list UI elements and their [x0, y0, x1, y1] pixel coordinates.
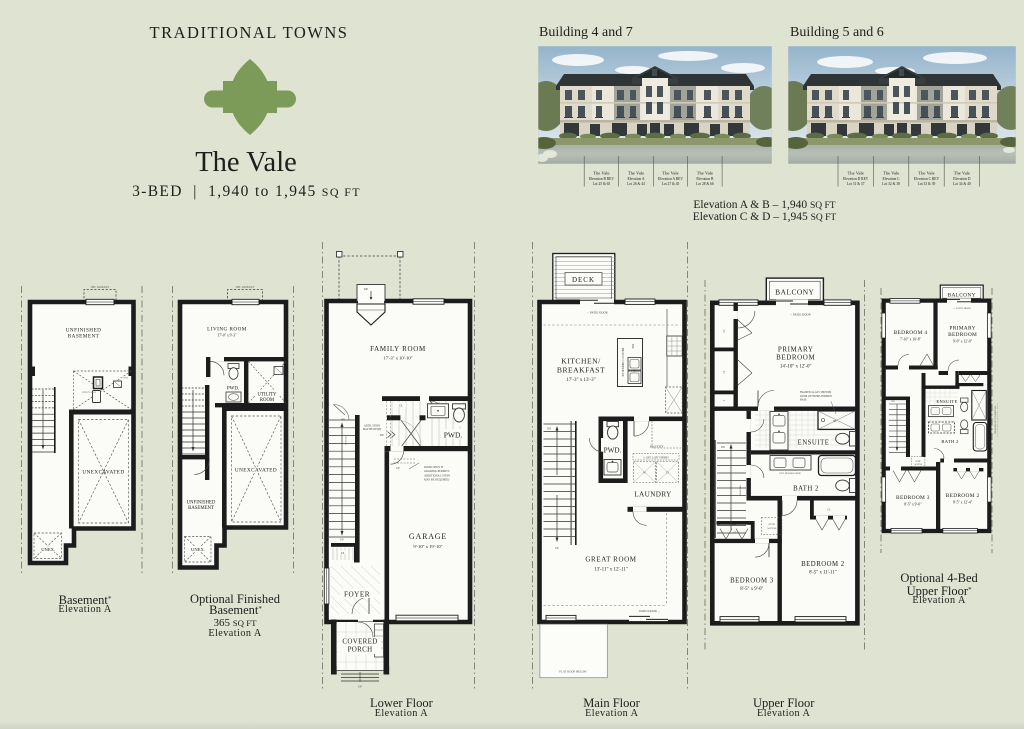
svg-text:Elevation C: Elevation C [883, 177, 901, 181]
svg-text:RAILING: RAILING [739, 485, 742, 495]
svg-text:PRIMARY: PRIMARY [949, 326, 975, 332]
svg-text:GARAGE: GARAGE [409, 532, 447, 541]
svg-text:BEDROOM 2: BEDROOM 2 [801, 561, 845, 568]
svg-text:UNFINISHED: UNFINISHED [66, 327, 102, 333]
svg-text:BALCONY: BALCONY [948, 292, 976, 298]
svg-text:Lot 25 & 65: Lot 25 & 65 [593, 182, 611, 186]
svg-text:OPT. LOOKOUT: OPT. LOOKOUT [236, 286, 255, 289]
svg-text:8'-5" x 9'-0": 8'-5" x 9'-0" [740, 587, 763, 592]
svg-text:Lot 34 & 40: Lot 34 & 40 [953, 182, 971, 186]
svg-text:LAUNDRY: LAUNDRY [634, 491, 672, 499]
svg-text:ENSUITE: ENSUITE [798, 440, 830, 447]
svg-text:PWD.: PWD. [227, 387, 239, 392]
svg-text:UP: UP [358, 686, 362, 689]
svg-text:PWD.: PWD. [604, 447, 622, 455]
svg-text:The Vale: The Vale [918, 171, 934, 176]
svg-text:→ PATIO DOOR: → PATIO DOOR [789, 313, 810, 317]
svg-text:UNEXCAVATED: UNEXCAVATED [235, 468, 277, 474]
svg-text:9'-0" x 12'-0": 9'-0" x 12'-0" [953, 339, 973, 343]
svg-text:ACCESS: ACCESS [767, 527, 777, 530]
svg-text:Elevation B REV: Elevation B REV [589, 177, 615, 181]
svg-text:BEDROOM 4: BEDROOM 4 [894, 330, 928, 336]
svg-text:9'-10" x 19'-10": 9'-10" x 19'-10" [413, 544, 442, 549]
svg-text:ATTIC: ATTIC [915, 460, 921, 463]
svg-text:BATH 2: BATH 2 [941, 439, 959, 444]
svg-text:CL: CL [399, 403, 403, 407]
svg-text:BEDROOM: BEDROOM [776, 354, 815, 362]
svg-text:ACCESS: ACCESS [914, 463, 923, 466]
svg-text:The Vale: The Vale [697, 171, 713, 176]
svg-text:DW: DW [632, 343, 635, 348]
svg-text:EXTENDED COUNTER: EXTENDED COUNTER [622, 347, 625, 376]
svg-text:DN: DN [891, 401, 895, 403]
svg-text:UP: UP [555, 547, 559, 550]
svg-text:The Vale: The Vale [593, 171, 609, 176]
svg-text:7'-10" x 10'-8": 7'-10" x 10'-8" [900, 337, 922, 341]
svg-text:OPT. LOOKOUT: OPT. LOOKOUT [91, 286, 110, 289]
svg-text:8'-5" x 11'-11": 8'-5" x 11'-11" [809, 571, 837, 576]
svg-text:ROOM: ROOM [260, 398, 275, 403]
svg-text:Lot 28 & 66: Lot 28 & 66 [696, 182, 714, 186]
svg-text:BEDROOM: BEDROOM [948, 332, 977, 338]
svg-text:COVERED: COVERED [342, 638, 377, 646]
svg-text:BASEMENT: BASEMENT [68, 334, 100, 340]
svg-text:OPT. DOUBLE SINK: OPT. DOUBLE SINK [779, 472, 801, 475]
svg-text:PATIO DOOR ←: PATIO DOOR ← [639, 609, 660, 613]
svg-text:UNEX.: UNEX. [41, 547, 55, 552]
svg-text:FOYER: FOYER [344, 591, 370, 599]
svg-text:UP: UP [340, 539, 344, 542]
svg-text:UNEXCAVATED: UNEXCAVATED [82, 470, 124, 476]
svg-text:BALCONY: BALCONY [775, 288, 814, 297]
svg-text:8'-5" x 12'-4": 8'-5" x 12'-4" [953, 501, 973, 505]
svg-text:Elevation D REV: Elevation D REV [843, 177, 869, 181]
svg-text:MAY BE REQ'D: MAY BE REQ'D [363, 428, 382, 431]
svg-text:PRIMARY: PRIMARY [778, 346, 814, 354]
svg-text:BEDROOM 3: BEDROOM 3 [730, 578, 774, 585]
svg-text:Elevation B: Elevation B [696, 177, 714, 181]
svg-text:UTILITY AREA: UTILITY AREA [82, 391, 97, 394]
svg-text:BASE: BASE [800, 399, 807, 402]
svg-text:The Vale: The Vale [662, 171, 678, 176]
svg-text:13'-11" x 12'-11": 13'-11" x 12'-11" [594, 568, 628, 573]
svg-text:ATTIC: ATTIC [768, 523, 775, 526]
svg-text:DN: DN [547, 428, 551, 431]
svg-text:ENSUITE: ENSUITE [936, 399, 957, 404]
svg-text:UTILITY: UTILITY [258, 393, 277, 398]
svg-text:RAILING: RAILING [345, 435, 348, 445]
svg-text:DOOR WITH PRE-FORMED BASE: DOOR WITH PRE-FORMED BASE [997, 403, 999, 438]
svg-text:FAMILY ROOM: FAMILY ROOM [370, 345, 426, 353]
svg-text:KITCHEN/: KITCHEN/ [561, 357, 601, 366]
svg-text:ADD'L STEPS: ADD'L STEPS [364, 424, 381, 427]
svg-text:UNFINISHED: UNFINISHED [187, 501, 216, 506]
svg-text:Lot 31 & 37: Lot 31 & 37 [847, 182, 865, 186]
svg-text:MAY BE REQUIRED: MAY BE REQUIRED [424, 479, 449, 482]
svg-text:↳ OPT. LOFT UPPERS: ↳ OPT. LOFT UPPERS [643, 455, 669, 459]
svg-text:Elevation C REV: Elevation C REV [914, 177, 940, 181]
svg-text:BATH 2: BATH 2 [793, 486, 819, 493]
svg-text:DN: DN [341, 419, 345, 422]
svg-text:CL: CL [723, 329, 726, 333]
svg-text:Elevation D: Elevation D [953, 177, 971, 181]
svg-text:PORCH: PORCH [348, 646, 373, 654]
svg-text:The Vale: The Vale [883, 171, 899, 176]
svg-text:The Vale: The Vale [848, 171, 864, 176]
svg-text:CL: CL [827, 509, 831, 512]
svg-text:HWT: HWT [124, 378, 129, 380]
svg-text:FLAT ROOF BELOW: FLAT ROOF BELOW [559, 670, 586, 674]
svg-text:Lot 27 & 45: Lot 27 & 45 [662, 182, 680, 186]
svg-text:Lot 33 & 39: Lot 33 & 39 [918, 182, 936, 186]
svg-text:ADDITIONAL STEPS: ADDITIONAL STEPS [424, 474, 451, 477]
svg-text:SH: SH [833, 420, 836, 423]
svg-text:UP: UP [396, 467, 400, 470]
svg-text:BEDROOM 2: BEDROOM 2 [946, 493, 980, 499]
svg-text:17'-3" x 10'-10": 17'-3" x 10'-10" [383, 356, 412, 361]
svg-text:14'-10" x 12'-0": 14'-10" x 12'-0" [780, 365, 812, 370]
svg-text:The Vale: The Vale [954, 171, 970, 176]
svg-text:Elevation A: Elevation A [627, 177, 644, 181]
svg-text:DECK: DECK [572, 276, 595, 284]
svg-text:CL: CL [341, 551, 345, 555]
svg-text:CL: CL [723, 370, 726, 374]
svg-text:FRAMED GLASS SHOWER: FRAMED GLASS SHOWER [994, 406, 997, 434]
svg-text:GREAT ROOM: GREAT ROOM [585, 556, 636, 564]
svg-text:DN: DN [380, 434, 384, 437]
svg-text:The Vale: The Vale [628, 171, 644, 176]
svg-text:Elevation A REV: Elevation A REV [658, 177, 683, 181]
svg-text:→ PATIO DOOR: → PATIO DOOR [953, 307, 971, 310]
svg-text:UNEX.: UNEX. [191, 547, 205, 552]
svg-text:17'-3" x 13'-3": 17'-3" x 13'-3" [566, 378, 595, 383]
svg-text:17'-0" x 9'-3": 17'-0" x 9'-3" [217, 334, 237, 338]
svg-text:8'-5" x 9'-0": 8'-5" x 9'-0" [904, 503, 922, 507]
svg-text:GRADING PERMITS: GRADING PERMITS [424, 470, 450, 473]
svg-text:Lot 32 & 38: Lot 32 & 38 [882, 182, 900, 186]
svg-text:Lot 26 & 44: Lot 26 & 44 [627, 182, 645, 186]
svg-text:→ PATIO DOOR: → PATIO DOOR [586, 311, 607, 315]
svg-text:BEDROOM 3: BEDROOM 3 [896, 495, 930, 501]
svg-text:PWD.: PWD. [444, 430, 463, 439]
svg-text:LIVING ROOM: LIVING ROOM [207, 327, 247, 333]
svg-text:UP: UP [364, 287, 368, 291]
svg-text:BASEMENT: BASEMENT [188, 506, 214, 511]
svg-text:DN: DN [721, 446, 725, 449]
svg-text:BREAKFAST: BREAKFAST [557, 366, 605, 375]
svg-text:DOOR ONLY IF: DOOR ONLY IF [424, 466, 444, 469]
svg-text:DOOR WITH PRE-FORMED: DOOR WITH PRE-FORMED [800, 395, 832, 398]
svg-text:FRAMED GLASS SHOWER: FRAMED GLASS SHOWER [800, 391, 832, 394]
